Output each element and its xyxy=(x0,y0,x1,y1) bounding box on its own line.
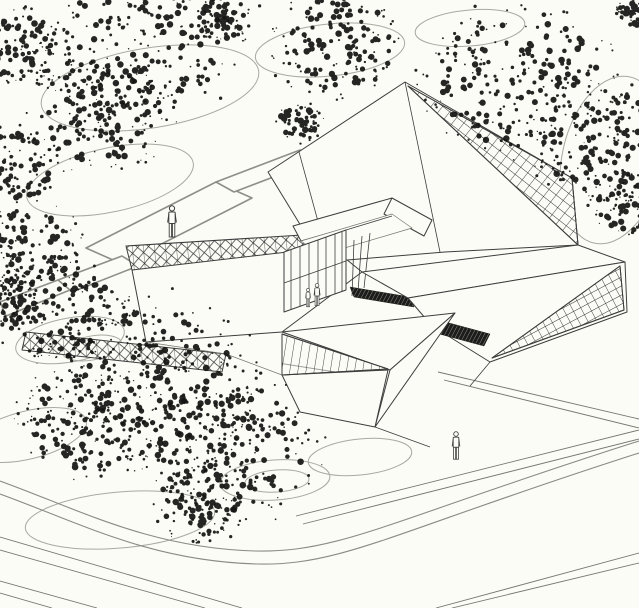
plaza-strip-lower xyxy=(58,256,138,292)
curved-road-outer-kerb xyxy=(0,441,639,551)
curved-road-inner-kerb xyxy=(0,453,639,564)
tree-canopy xyxy=(275,103,324,145)
tree-canopy xyxy=(26,48,177,170)
walkway-edge-lower-right xyxy=(436,553,639,608)
contour-loop xyxy=(0,397,92,473)
tree-canopy xyxy=(197,0,261,42)
contour-loop xyxy=(219,456,332,504)
tree-canopy xyxy=(615,0,639,28)
front-wedge-left-face xyxy=(282,370,388,427)
person-figure xyxy=(452,432,460,460)
walkway-edge-upper xyxy=(296,430,639,524)
architectural-drawing-canvas: Black and white axonometric architectura… xyxy=(0,0,639,608)
contour-loop xyxy=(414,5,527,50)
contour-loop xyxy=(23,484,217,556)
path-below-wedge xyxy=(438,372,639,428)
tree-canopy xyxy=(271,0,399,101)
tree-canopy xyxy=(40,0,242,131)
tree-canopy xyxy=(0,5,65,86)
axonometric-site-drawing xyxy=(0,0,639,608)
contour-loop xyxy=(306,434,413,481)
